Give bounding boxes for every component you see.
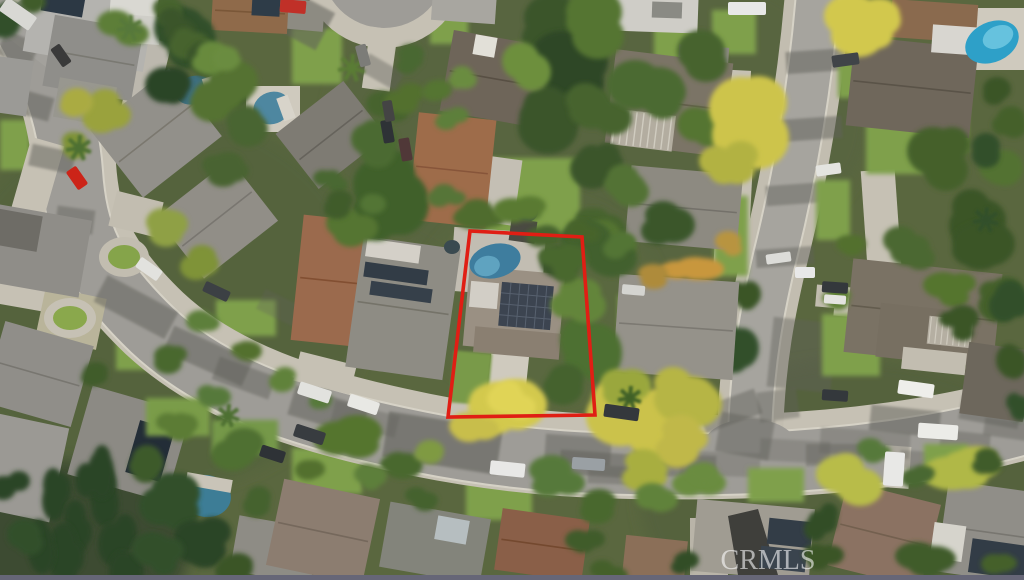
svg-text:CRMLS: CRMLS <box>721 545 816 575</box>
